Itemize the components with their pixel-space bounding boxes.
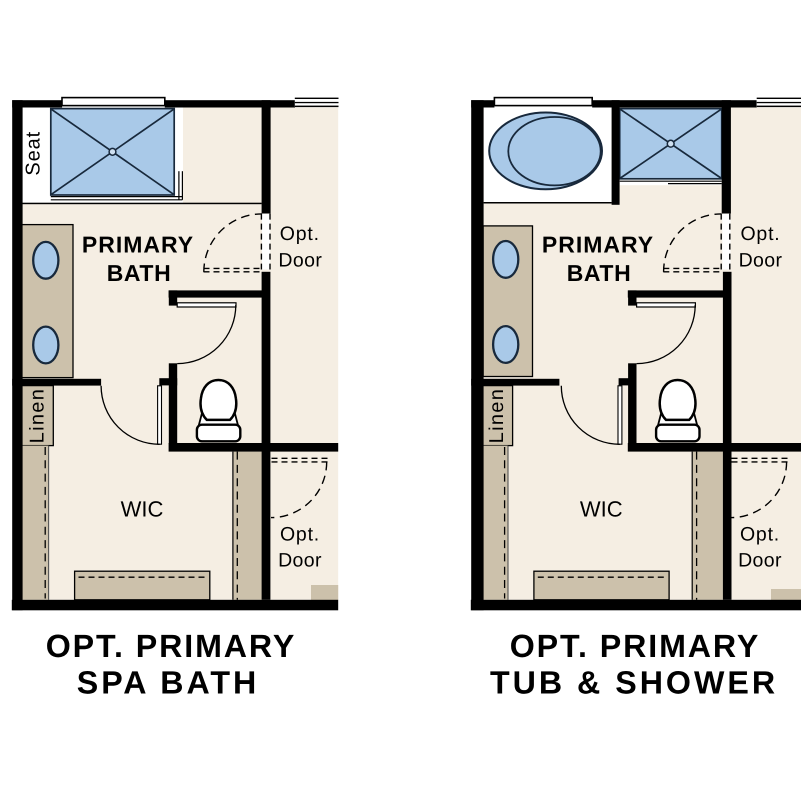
svg-text:TUB & SHOWER: TUB & SHOWER [490,665,778,701]
svg-text:OPT. PRIMARY: OPT. PRIMARY [510,628,761,664]
svg-text:Door: Door [278,550,322,572]
svg-text:Door: Door [278,250,322,272]
svg-text:Opt.: Opt. [280,524,320,546]
svg-text:Door: Door [738,550,782,572]
svg-text:OPT. PRIMARY: OPT. PRIMARY [46,628,297,664]
svg-text:Linen: Linen [486,388,508,443]
svg-text:Door: Door [739,250,783,272]
svg-text:Linen: Linen [27,388,49,443]
svg-text:BATH: BATH [567,260,632,286]
svg-text:Opt.: Opt. [280,223,320,245]
svg-text:PRIMARY: PRIMARY [542,232,654,258]
svg-text:SPA BATH: SPA BATH [77,665,260,701]
svg-text:PRIMARY: PRIMARY [82,232,194,258]
svg-text:Opt.: Opt. [740,524,780,546]
svg-text:WIC: WIC [121,496,164,521]
svg-text:WIC: WIC [580,496,623,521]
svg-text:Seat: Seat [23,131,45,176]
svg-text:BATH: BATH [107,260,172,286]
svg-text:Opt.: Opt. [740,223,780,245]
